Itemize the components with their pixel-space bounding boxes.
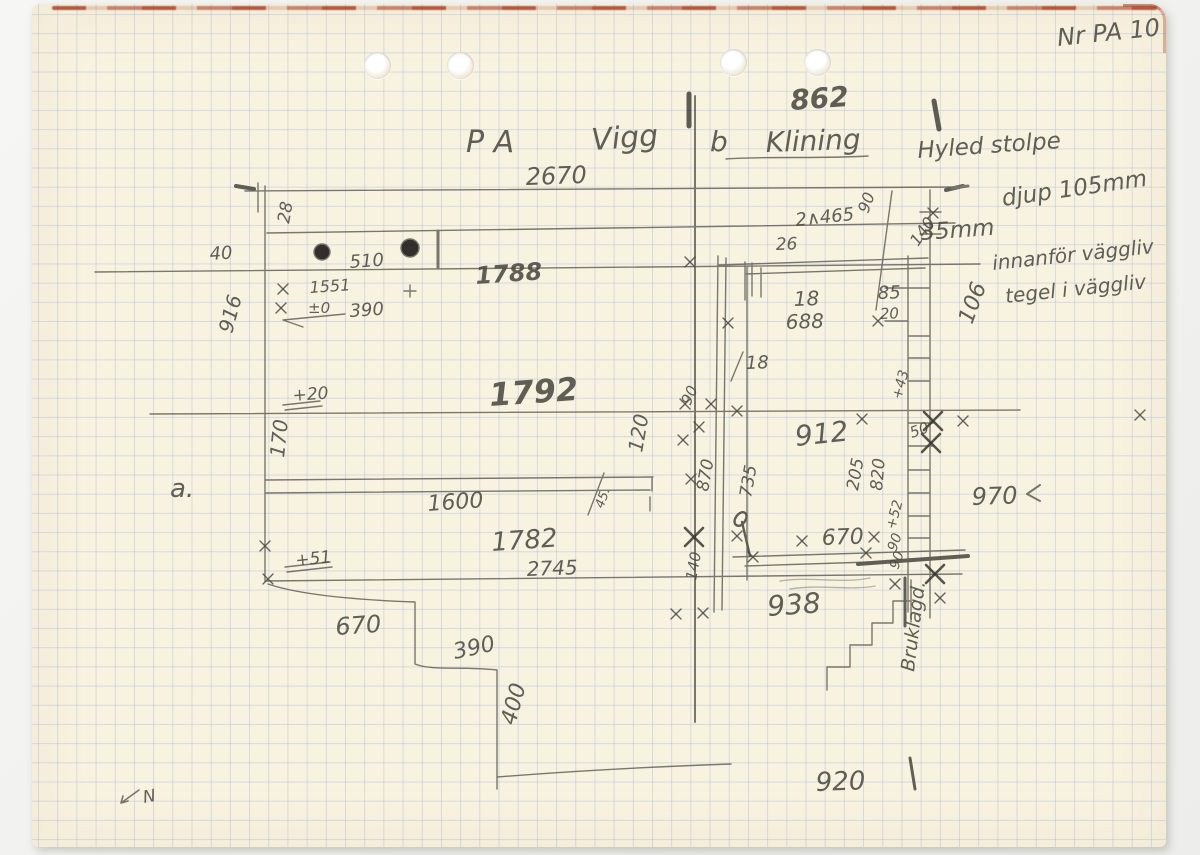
handwritten-label: Hyled stolpe [917,128,1062,164]
handwritten-label: 18 [793,286,819,311]
handwritten-label: +43 [889,368,912,401]
handwritten-label: 28 [274,200,297,225]
handwritten-label: 1782 [490,523,558,558]
handwritten-label: 390 [349,299,385,322]
handwritten-label: +51 [294,547,332,571]
handwritten-label: 18 [745,352,769,374]
handwritten-label: 510 [349,250,385,273]
handwritten-label: Klining [765,123,861,159]
handwritten-label: 85 [877,282,901,304]
handwritten-label: 1600 [427,488,485,517]
handwritten-label: 106 [954,279,992,327]
handwritten-label: 1788 [474,257,543,290]
handwritten-label: N [141,786,157,808]
pencil-drawing: Nr PA 10P AViggbKlining8622670Hyled stol… [0,0,1200,855]
handwritten-label: 912 [793,415,850,453]
handwritten-label: 390 [451,632,497,665]
handwritten-label: 40 [209,242,233,265]
measurement-lines [95,94,1040,803]
handwritten-label: 688 [785,309,824,334]
handwritten-label: 120 [623,412,653,454]
handwritten-label: 916 [214,292,247,335]
handwritten-label: 938 [766,586,822,623]
handwritten-label: 2∧465 [794,204,855,231]
handwritten-label: tegel i väggliv [1004,269,1148,308]
handwritten-label: Bruklagd. [897,580,930,673]
handwritten-label: 20 [880,304,900,323]
handwritten-label: 970 [971,481,1018,511]
handwritten-label: 920 [815,766,866,798]
handwritten-label: ±0 [308,299,330,317]
handwritten-label: 90 [854,190,879,216]
handwritten-label: 90 [677,383,701,408]
handwritten-label: 90 [885,531,906,553]
handwritten-label: +52 [883,498,906,531]
handwritten-label: 820 [867,457,890,491]
handwritten-label: P A [466,125,514,160]
handwritten-label: 2745 [526,555,578,581]
handwritten-label: a. [170,474,194,504]
handwritten-label: 170 [265,418,293,458]
handwritten-label: Vigg [590,118,659,158]
handwritten-label: 2670 [525,161,587,191]
scanned-sketch-background: Nr PA 10P AViggbKlining8622670Hyled stol… [0,0,1200,855]
handwritten-label: 670 [821,525,864,551]
handwritten-label: 1551 [309,275,351,297]
handwritten-label: 862 [789,80,850,117]
handwritten-label: Nr PA 10 [1056,13,1162,52]
handwritten-label: 45. [593,486,614,511]
handwritten-label: b [710,125,728,158]
handwritten-label: 400 [497,681,532,728]
handwritten-label: innanför väggliv [991,234,1156,275]
handwritten-label: 26 [775,234,798,255]
handwritten-label: 205 [843,456,868,491]
handwritten-label: 1792 [488,370,579,414]
handwritten-label: 735 [736,463,761,498]
handwritten-label: +20 [292,384,329,406]
handwritten-label: 670 [334,610,382,641]
handwritten-label: djup 105mm [1000,166,1148,212]
